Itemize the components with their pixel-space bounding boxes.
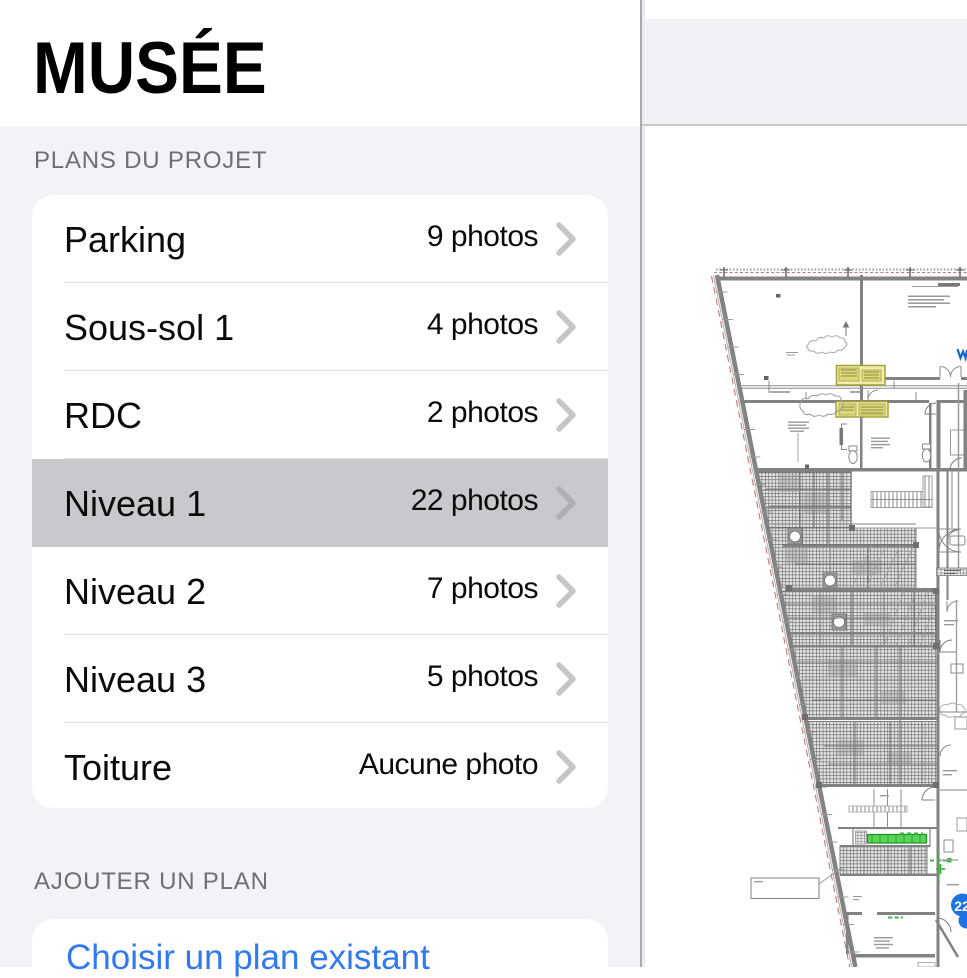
- svg-text:22: 22: [954, 898, 967, 914]
